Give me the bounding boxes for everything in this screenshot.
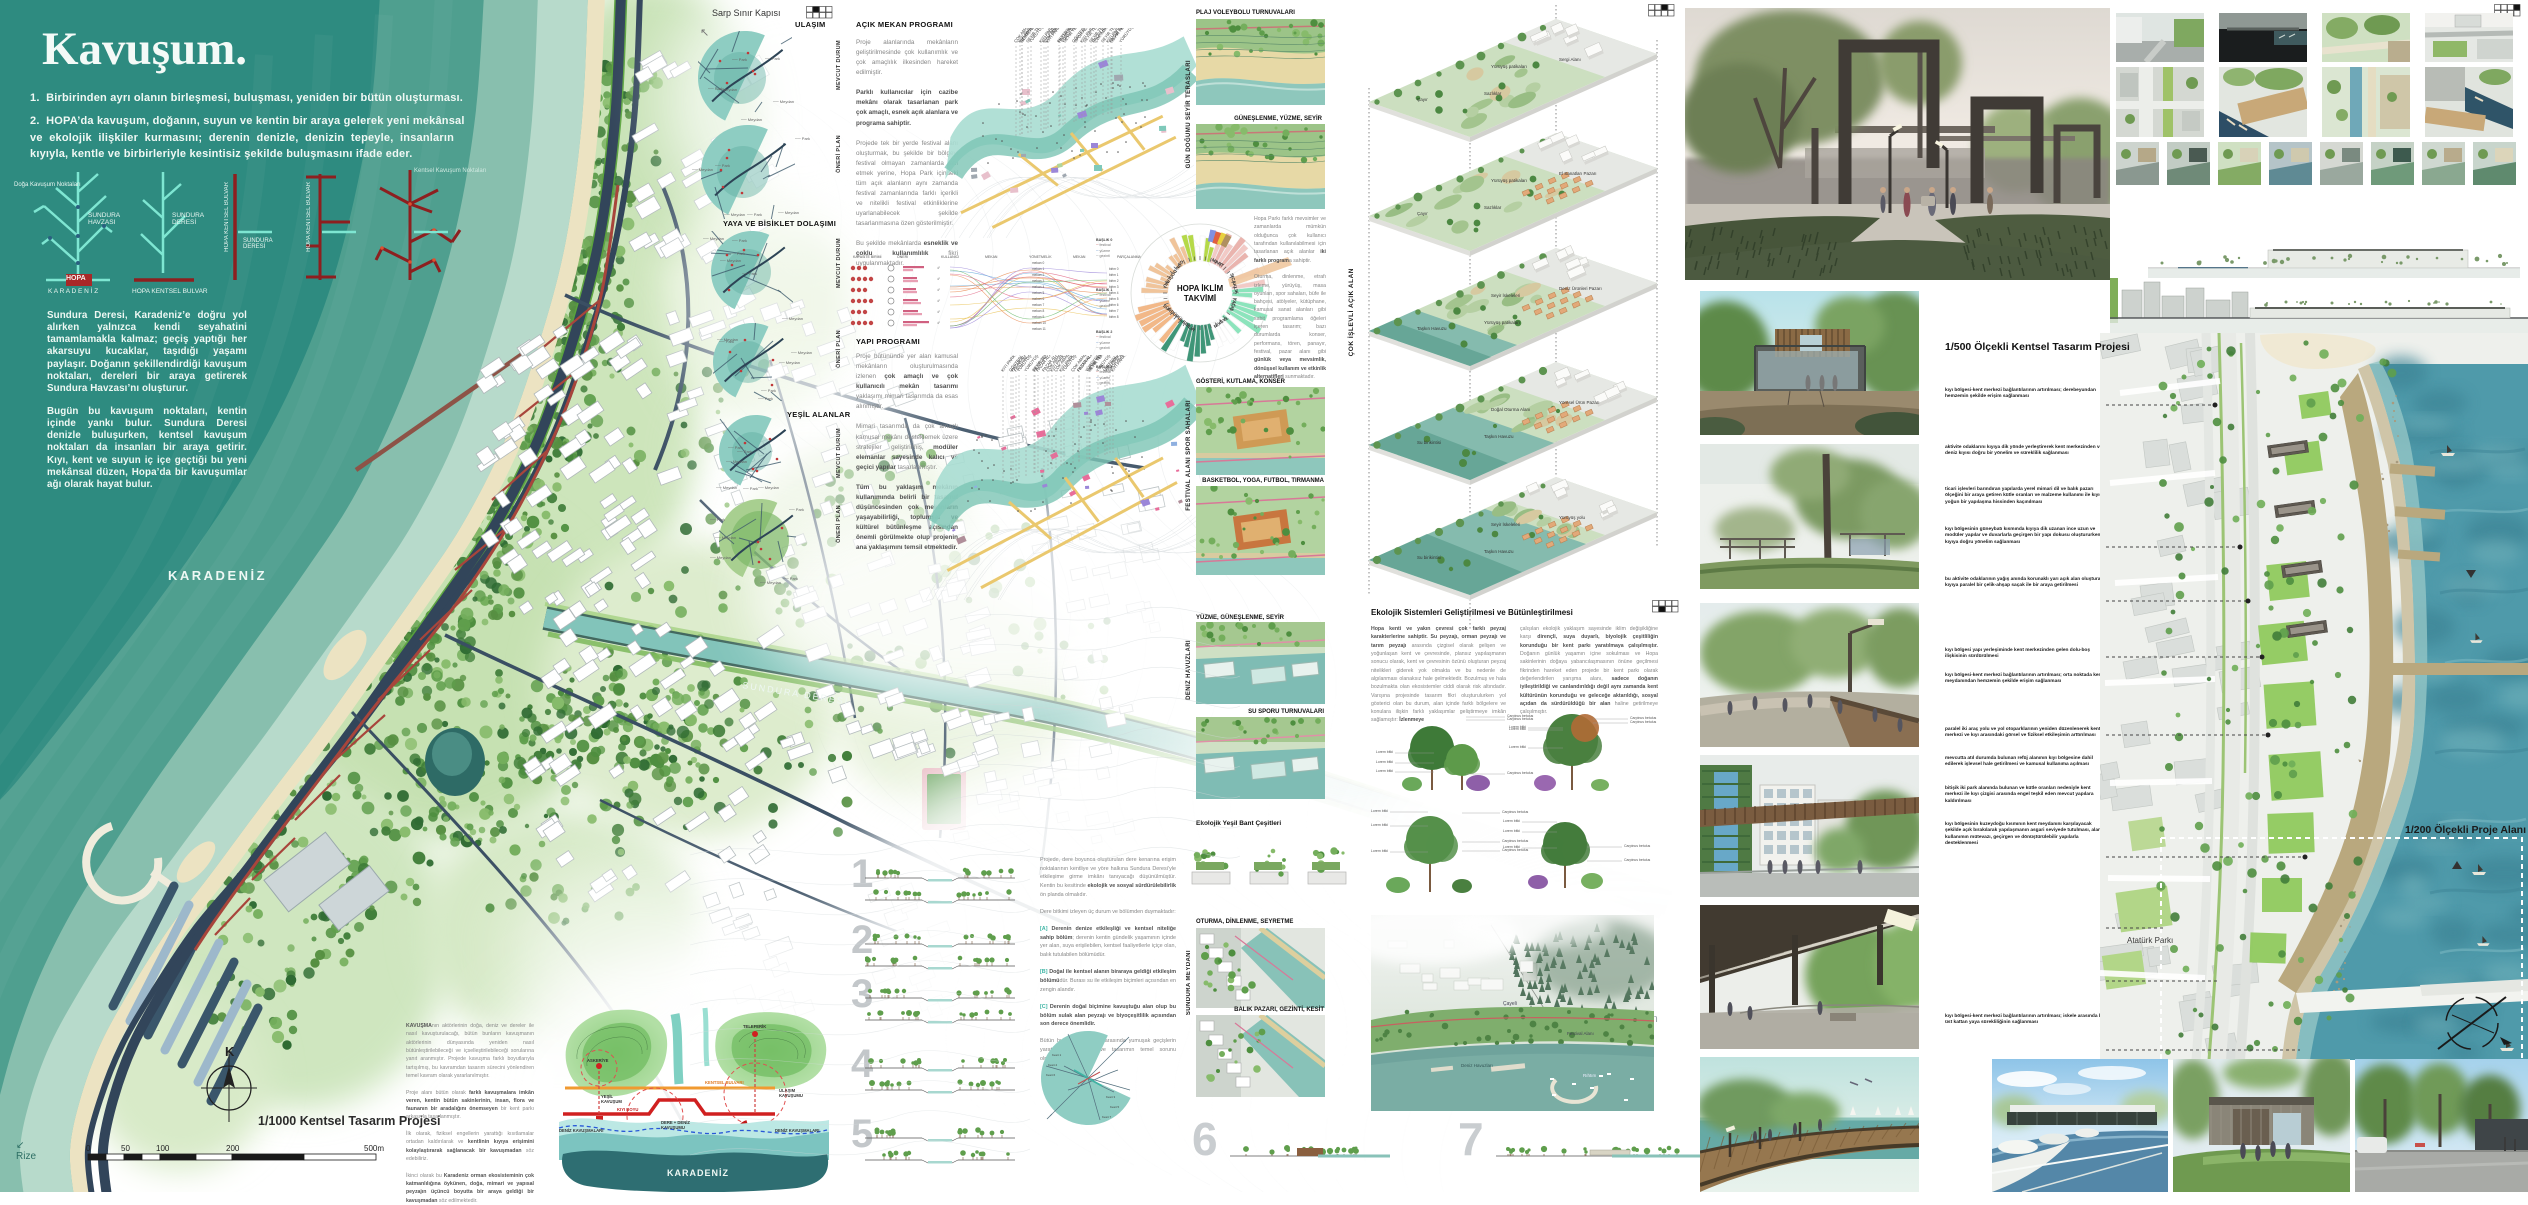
svg-text:Kesit 1: Kesit 1 <box>1052 1053 1062 1057</box>
svg-text:KAPASİTE BİRİMİ: KAPASİTE BİRİMİ <box>853 254 882 259</box>
svg-text:Yürüyüş yolu: Yürüyüş yolu <box>1559 515 1586 520</box>
svg-text:Deniz Havuzları: Deniz Havuzları <box>1461 1063 1493 1068</box>
svg-text:Taşkın Havuzu: Taşkın Havuzu <box>1484 434 1514 439</box>
svg-text:100: 100 <box>156 1144 170 1153</box>
svg-text:mekan 6: mekan 6 <box>1032 297 1044 301</box>
svg-text:mekan 3: mekan 3 <box>1032 279 1044 283</box>
svg-text:Yürüyüş patikaları: Yürüyüş patikaları <box>1491 178 1527 183</box>
svg-text:500m: 500m <box>364 1144 384 1153</box>
svg-text:Taşkın Havuzu: Taşkın Havuzu <box>1417 326 1447 331</box>
svg-text:mekan 10: mekan 10 <box>1032 321 1046 325</box>
svg-text:Deniz Ürünleri Pazarı: Deniz Ürünleri Pazarı <box>1559 285 1602 291</box>
svg-text:𝒮: 𝒮 <box>937 277 940 281</box>
svg-text:DENİZ KAVUŞMALARI: DENİZ KAVUŞMALARI <box>559 1128 603 1133</box>
svg-text:Carpinus betulus: Carpinus betulus <box>1507 771 1534 775</box>
svg-text:𝒮: 𝒮 <box>937 299 940 303</box>
svg-text:Su birikintisi: Su birikintisi <box>1417 555 1441 560</box>
svg-text:ASKERİYE: ASKERİYE <box>587 1058 609 1063</box>
svg-text:Lorem bitki: Lorem bitki <box>1376 760 1393 764</box>
svg-text:MEKAN: MEKAN <box>985 255 998 259</box>
svg-text:Yöresel Ürün Pazarı: Yöresel Ürün Pazarı <box>1559 399 1600 405</box>
svg-text:Çayır: Çayır <box>1417 211 1428 216</box>
svg-text:Lorem bitki: Lorem bitki <box>1503 819 1520 823</box>
svg-text:200: 200 <box>226 1144 240 1153</box>
svg-text:mekan 1: mekan 1 <box>1032 267 1044 271</box>
svg-text:50: 50 <box>121 1144 130 1153</box>
svg-text:Carpinus betulus: Carpinus betulus <box>1507 714 1534 718</box>
svg-text:𝒮: 𝒮 <box>937 310 940 314</box>
svg-text:Kesit 7: Kesit 7 <box>1102 1115 1112 1119</box>
svg-text:YÖNETMELİK: YÖNETMELİK <box>1029 254 1052 259</box>
svg-text:mekan 11: mekan 11 <box>1032 327 1046 331</box>
svg-text:Seyir İskeleleri: Seyir İskeleleri <box>1491 521 1520 527</box>
svg-text:Lorem bitki: Lorem bitki <box>1503 829 1520 833</box>
svg-text:Carpinus betulus: Carpinus betulus <box>1502 839 1529 843</box>
svg-text:KAVUŞUMU: KAVUŞUMU <box>661 1125 685 1130</box>
svg-text:KAVUŞUM: KAVUŞUM <box>601 1099 622 1104</box>
svg-text:Lorem bitki: Lorem bitki <box>1371 849 1388 853</box>
svg-text:𝒮: 𝒮 <box>937 288 940 292</box>
svg-text:Lorem bitki: Lorem bitki <box>1376 769 1393 773</box>
svg-text:HOPA İKLİM: HOPA İKLİM <box>1177 284 1224 293</box>
svg-text:Yürüyüş patikaları: Yürüyüş patikaları <box>1491 64 1527 69</box>
svg-text:Su birikintisi: Su birikintisi <box>1417 440 1441 445</box>
svg-text:mekan 2: mekan 2 <box>1032 273 1044 277</box>
svg-text:Çayeli: Çayeli <box>1503 1001 1517 1007</box>
svg-text:Carpinus betulus: Carpinus betulus <box>1630 720 1657 724</box>
svg-text:El Sanatları Pazarı: El Sanatları Pazarı <box>1559 171 1597 176</box>
svg-text:K: K <box>225 1044 235 1059</box>
svg-text:Lorem bitki: Lorem bitki <box>1371 823 1388 827</box>
svg-text:TAKVİMİ: TAKVİMİ <box>1184 294 1216 303</box>
svg-text:Kesit 6: Kesit 6 <box>1046 1073 1056 1077</box>
svg-text:MEKAN: MEKAN <box>1073 255 1086 259</box>
svg-text:ÖNERİ: ÖNERİ <box>897 254 908 259</box>
svg-text:0: 0 <box>86 1144 91 1153</box>
svg-text:𝒮: 𝒮 <box>937 321 940 325</box>
svg-text:Sergi Alanı: Sergi Alanı <box>1559 57 1581 62</box>
svg-text:KIYI BOYU: KIYI BOYU <box>617 1107 638 1112</box>
svg-text:Lorem bitki: Lorem bitki <box>1503 845 1520 849</box>
svg-text:Festival Alanı: Festival Alanı <box>1567 1031 1594 1036</box>
svg-text:Çayır: Çayır <box>1417 97 1428 102</box>
svg-text:Lorem bitki: Lorem bitki <box>1371 809 1388 813</box>
svg-text:Kesit 3: Kesit 3 <box>1106 1095 1116 1099</box>
svg-text:1/200 Ölçekli Proje Alanı: 1/200 Ölçekli Proje Alanı <box>2405 823 2526 836</box>
svg-text:mekan 4: mekan 4 <box>1032 285 1044 289</box>
svg-text:Lorem bitki: Lorem bitki <box>1509 727 1526 731</box>
svg-text:KULLANICI: KULLANICI <box>941 255 959 259</box>
svg-text:Lorem bitki: Lorem bitki <box>1376 750 1393 754</box>
svg-text:mekan 7: mekan 7 <box>1032 303 1044 307</box>
svg-text:Yürüyüş patikaları: Yürüyüş patikaları <box>1484 320 1520 325</box>
svg-text:Carpinus betulus: Carpinus betulus <box>1624 844 1651 848</box>
svg-text:𝒮: 𝒮 <box>937 266 940 270</box>
svg-text:mekan 5: mekan 5 <box>1032 291 1044 295</box>
svg-text:Seyir İskeleleri: Seyir İskeleleri <box>1491 292 1520 298</box>
svg-text:Sazlıklar: Sazlıklar <box>1484 205 1502 210</box>
svg-text:Carpinus betulus: Carpinus betulus <box>1502 810 1529 814</box>
svg-text:Atatürk Parkı: Atatürk Parkı <box>2127 936 2173 945</box>
svg-text:Lorem bitki: Lorem bitki <box>1509 745 1526 749</box>
svg-text:Taşkın Havuzu: Taşkın Havuzu <box>1484 549 1514 554</box>
svg-text:mekan 0: mekan 0 <box>1032 261 1044 265</box>
svg-text:Carpinus betulus: Carpinus betulus <box>1624 858 1651 862</box>
svg-text:Rıhtım: Rıhtım <box>1583 1073 1597 1078</box>
svg-text:Kesit 2: Kesit 2 <box>1048 1063 1058 1067</box>
svg-text:Doğal Oturma Alanı: Doğal Oturma Alanı <box>1491 407 1530 412</box>
svg-text:mekan 9: mekan 9 <box>1032 315 1044 319</box>
svg-text:Sazlıklar: Sazlıklar <box>1484 91 1502 96</box>
svg-text:Kesit 5: Kesit 5 <box>1110 1105 1120 1109</box>
svg-text:mekan 8: mekan 8 <box>1032 309 1044 313</box>
